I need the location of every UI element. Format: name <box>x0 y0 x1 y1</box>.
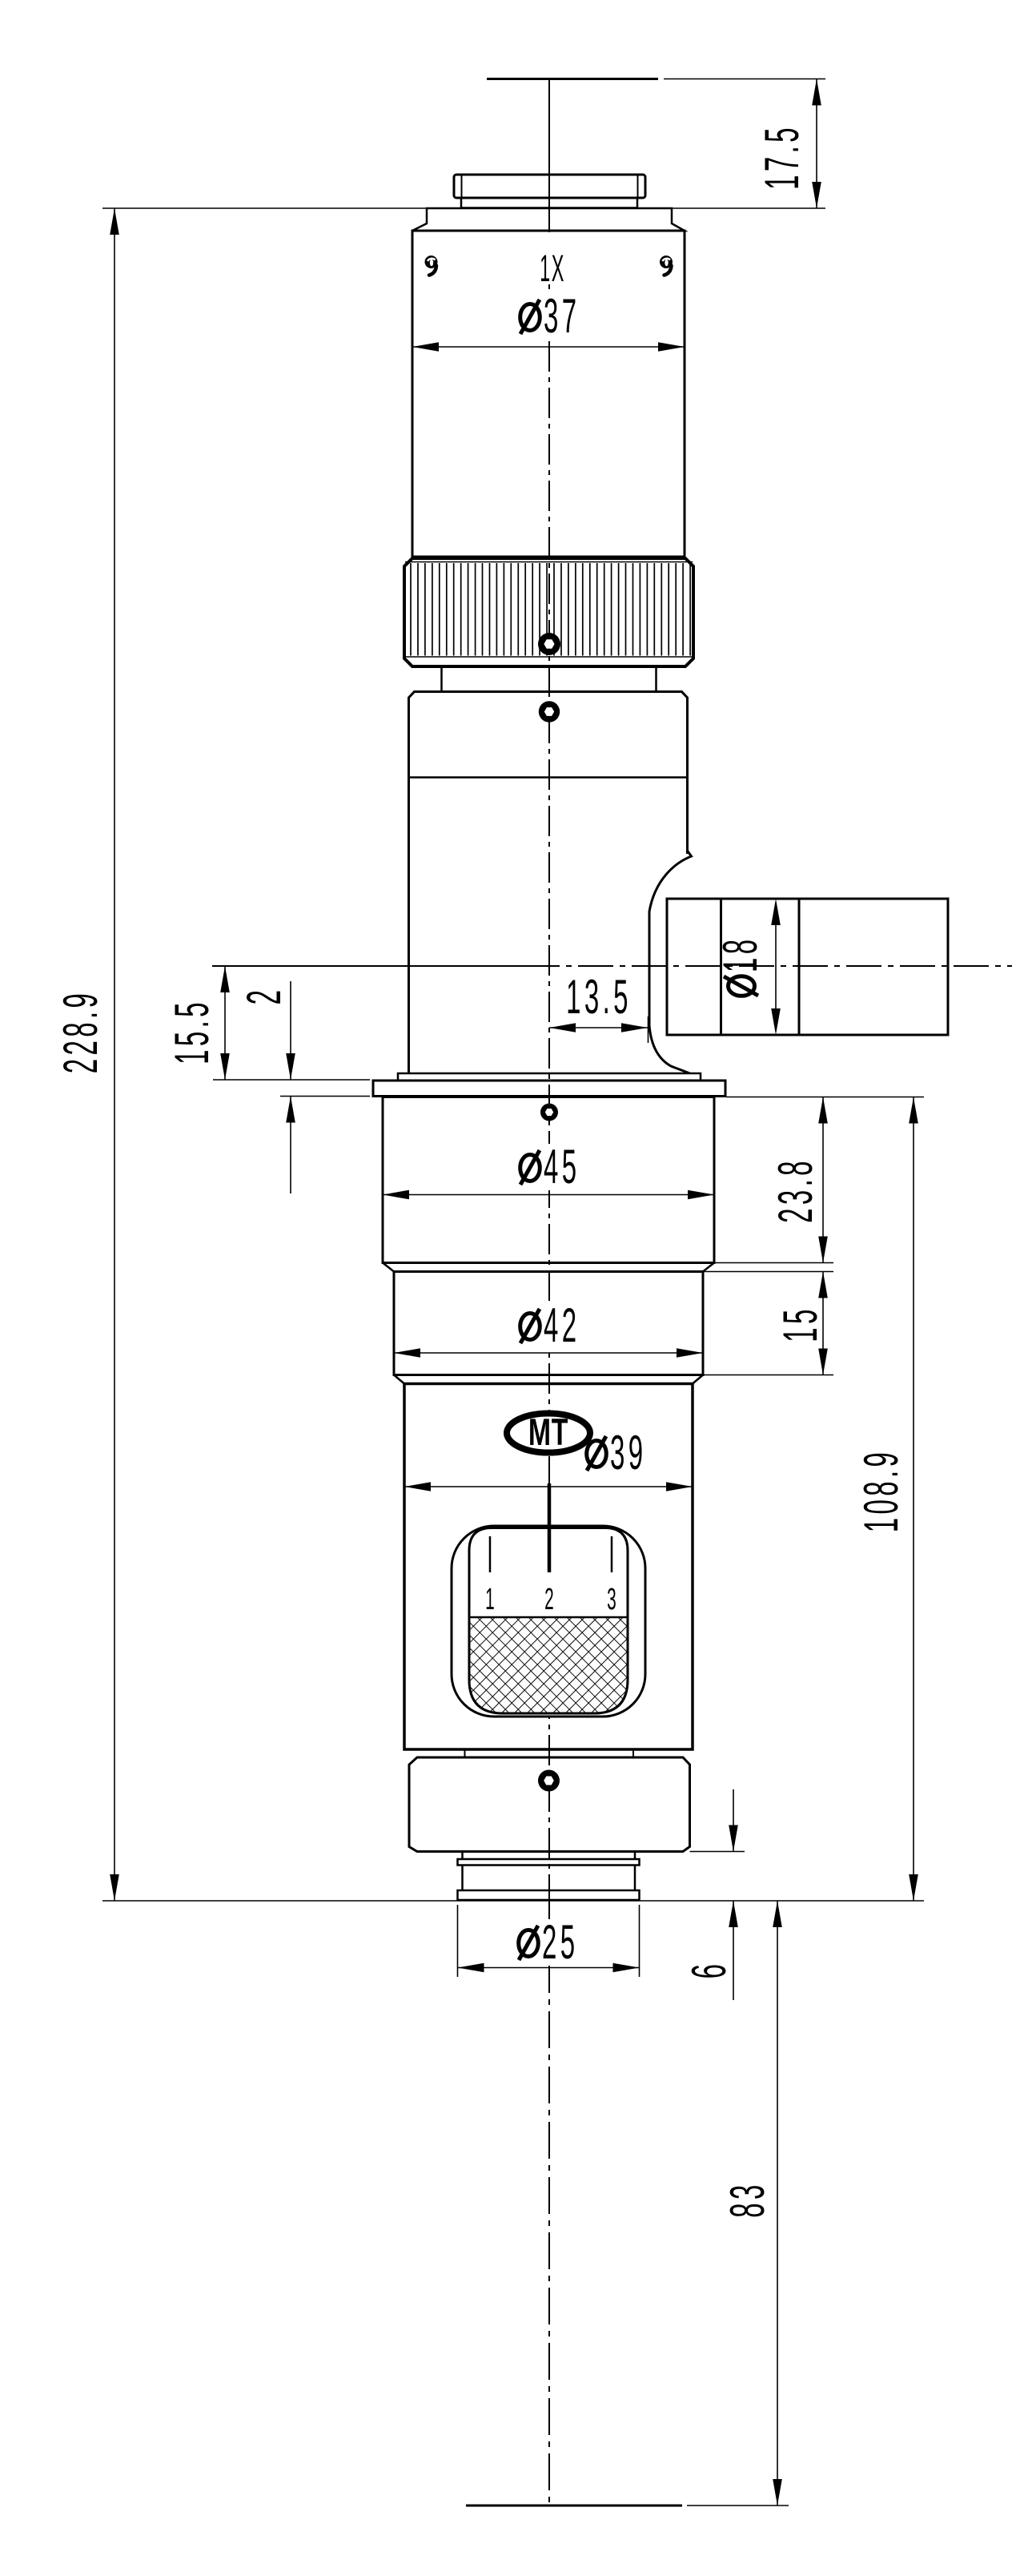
svg-text:39: 39 <box>610 1427 647 1480</box>
svg-text:23.8: 23.8 <box>769 1157 823 1223</box>
svg-text:108.9: 108.9 <box>855 1449 909 1533</box>
svg-text:1: 1 <box>485 1583 495 1616</box>
svg-text:3: 3 <box>607 1583 616 1616</box>
svg-text:1X: 1X <box>540 247 565 289</box>
svg-text:18: 18 <box>714 936 768 972</box>
svg-text:17.5: 17.5 <box>756 124 809 190</box>
svg-text:45: 45 <box>544 1141 580 1194</box>
svg-text:15.5: 15.5 <box>166 999 219 1065</box>
svg-text:15: 15 <box>774 1306 828 1342</box>
svg-text:2: 2 <box>544 1583 554 1616</box>
svg-text:25: 25 <box>542 1916 579 1970</box>
svg-text:13.5: 13.5 <box>566 971 632 1024</box>
svg-text:MT: MT <box>528 1411 568 1454</box>
svg-text:83: 83 <box>721 2181 775 2218</box>
svg-text:2: 2 <box>238 987 291 1005</box>
svg-text:37: 37 <box>544 290 580 344</box>
svg-text:42: 42 <box>544 1299 580 1353</box>
svg-text:228.9: 228.9 <box>54 990 108 1074</box>
svg-text:6: 6 <box>683 1961 737 1979</box>
